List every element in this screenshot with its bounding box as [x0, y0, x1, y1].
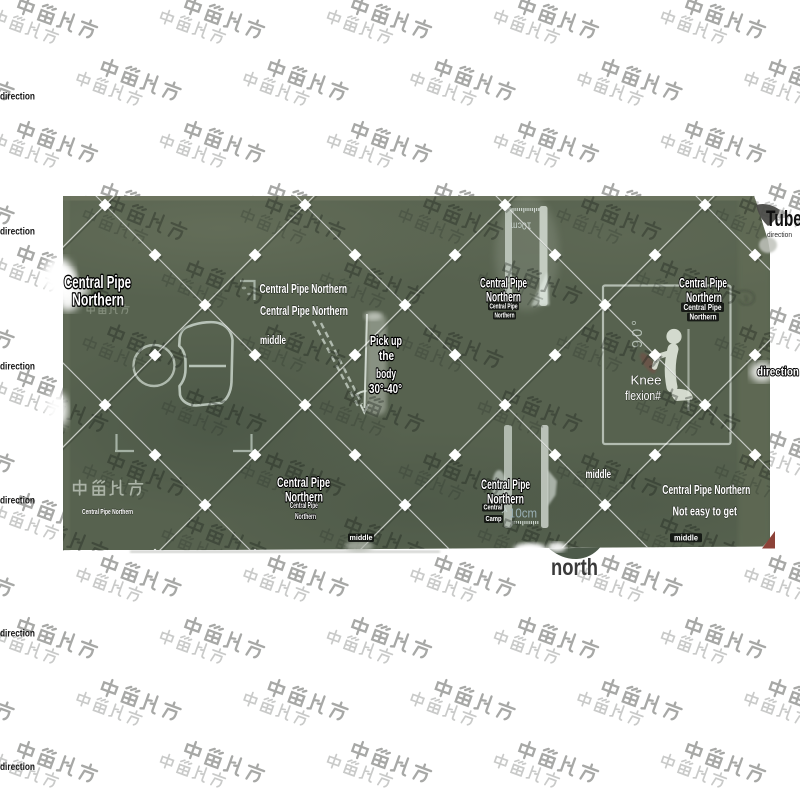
svg-text:Central Pipe: Central Pipe — [679, 276, 727, 291]
svg-text:Tuber: Tuber — [766, 206, 800, 231]
svg-text:middle: middle — [586, 467, 612, 481]
svg-text:Northern: Northern — [495, 311, 515, 320]
svg-text:direction: direction — [0, 495, 35, 507]
svg-text:flexion#: flexion# — [625, 389, 661, 403]
svg-text:middle: middle — [674, 533, 699, 542]
svg-text:Central Pipe Northern: Central Pipe Northern — [260, 282, 348, 296]
svg-text:Central Pipe: Central Pipe — [480, 276, 527, 291]
svg-text:Central Pipe Northern: Central Pipe Northern — [662, 483, 750, 497]
svg-text:direction: direction — [0, 226, 35, 238]
svg-text:direction: direction — [0, 761, 35, 773]
svg-text:Pick up: Pick up — [370, 333, 402, 348]
svg-text:Central Pipe: Central Pipe — [277, 475, 330, 490]
svg-text:Central Pipe: Central Pipe — [290, 501, 318, 510]
svg-text:Not easy to get: Not easy to get — [673, 505, 738, 519]
svg-text:direction: direction — [0, 91, 35, 103]
svg-text:Central Pipe: Central Pipe — [490, 302, 518, 311]
svg-text:the: the — [379, 348, 394, 363]
svg-text:Central Pipe Northern: Central Pipe Northern — [82, 507, 133, 516]
svg-text:Northern: Northern — [295, 512, 316, 521]
svg-text:direction: direction — [0, 361, 35, 373]
svg-text:30°-40°: 30°-40° — [369, 381, 402, 396]
svg-text:Central Pipe: Central Pipe — [481, 477, 530, 492]
svg-text:north: north — [551, 554, 598, 580]
svg-text:middle: middle — [260, 333, 286, 347]
svg-text:Camp: Camp — [486, 514, 502, 523]
svg-text:Central Pipe Northern: Central Pipe Northern — [260, 304, 348, 318]
svg-text:direction: direction — [0, 628, 35, 640]
svg-text:Northern: Northern — [690, 313, 717, 322]
svg-text:Knee: Knee — [631, 374, 662, 388]
svg-text:Northern: Northern — [72, 290, 124, 310]
svg-text:direction: direction — [767, 230, 792, 239]
svg-text:middle: middle — [350, 533, 373, 542]
svg-text:body: body — [376, 366, 396, 381]
svg-text:Central Pipe: Central Pipe — [684, 302, 722, 312]
svg-text:Central: Central — [484, 503, 503, 512]
svg-text:direction: direction — [757, 365, 799, 379]
